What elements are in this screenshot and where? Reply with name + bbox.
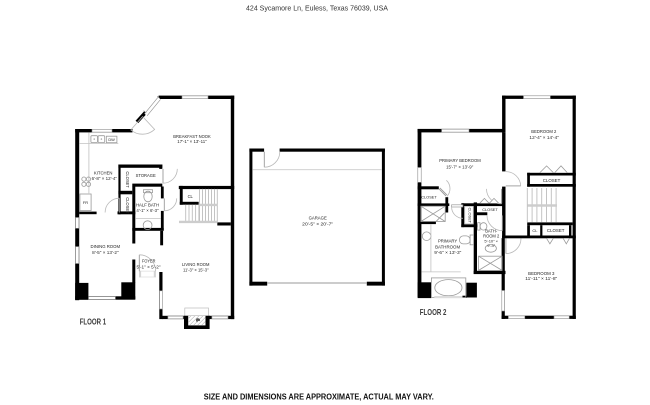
svg-text:5'-1" × 5'-2": 5'-1" × 5'-2" xyxy=(137,264,162,269)
svg-text:9'-6" × 13'-3": 9'-6" × 13'-3" xyxy=(434,250,462,255)
svg-text:KITCHEN: KITCHEN xyxy=(94,171,113,176)
svg-text:CLOSET: CLOSET xyxy=(421,194,437,199)
svg-text:11'-11" × 11'-8": 11'-11" × 11'-8" xyxy=(525,276,558,281)
svg-text:DW: DW xyxy=(108,137,115,142)
svg-text:15'-7" × 13'-9": 15'-7" × 13'-9" xyxy=(446,165,474,170)
svg-text:CL: CL xyxy=(532,228,538,233)
svg-text:6'-8" × 12'-4": 6'-8" × 12'-4" xyxy=(92,176,118,181)
svg-text:SIZE AND DIMENSIONS ARE APPROX: SIZE AND DIMENSIONS ARE APPROXIMATE, ACT… xyxy=(204,393,434,402)
svg-text:PRIMARY BEDROOM: PRIMARY BEDROOM xyxy=(439,158,481,163)
svg-text:BEDROOM 3: BEDROOM 3 xyxy=(528,271,555,276)
svg-text:12'-4" × 14'-4": 12'-4" × 14'-4" xyxy=(529,135,559,140)
svg-text:4'-1" × 6'-3": 4'-1" × 6'-3" xyxy=(136,208,159,213)
svg-text:FOYER: FOYER xyxy=(142,259,156,264)
svg-text:17'-1" × 13'-11": 17'-1" × 13'-11" xyxy=(177,139,207,144)
svg-text:11'-3" × 15'-3": 11'-3" × 15'-3" xyxy=(183,267,209,272)
svg-text:BATHROOM: BATHROOM xyxy=(435,244,460,249)
svg-text:GARAGE: GARAGE xyxy=(309,215,327,220)
svg-text:CL: CL xyxy=(188,194,194,199)
svg-text:HALF BATH: HALF BATH xyxy=(136,202,159,207)
svg-text:DINING ROOM: DINING ROOM xyxy=(91,244,121,249)
svg-text:STORAGE: STORAGE xyxy=(136,173,156,178)
svg-text:FLOOR 2: FLOOR 2 xyxy=(420,308,447,317)
svg-text:PRIMARY: PRIMARY xyxy=(438,239,457,244)
svg-text:CLOSET: CLOSET xyxy=(482,207,498,212)
svg-text:8'-5" × 13'-2": 8'-5" × 13'-2" xyxy=(92,250,119,255)
svg-text:20'-5" × 20'-7": 20'-5" × 20'-7" xyxy=(302,221,334,226)
svg-text:CLOSET: CLOSET xyxy=(547,228,565,233)
svg-text:9'-3": 9'-3" xyxy=(487,243,496,248)
svg-text:CLOSET: CLOSET xyxy=(125,171,130,188)
svg-text:CLOSET: CLOSET xyxy=(543,178,561,183)
svg-text:FR: FR xyxy=(83,200,88,205)
svg-text:CLOSET: CLOSET xyxy=(468,208,473,224)
svg-text:CLOSET: CLOSET xyxy=(125,197,130,214)
svg-text:FLOOR 1: FLOOR 1 xyxy=(80,317,107,326)
svg-text:BEDROOM 2: BEDROOM 2 xyxy=(531,129,556,134)
svg-text:424 Sycamore Ln, Euless, Texas: 424 Sycamore Ln, Euless, Texas 76039, US… xyxy=(246,6,388,13)
